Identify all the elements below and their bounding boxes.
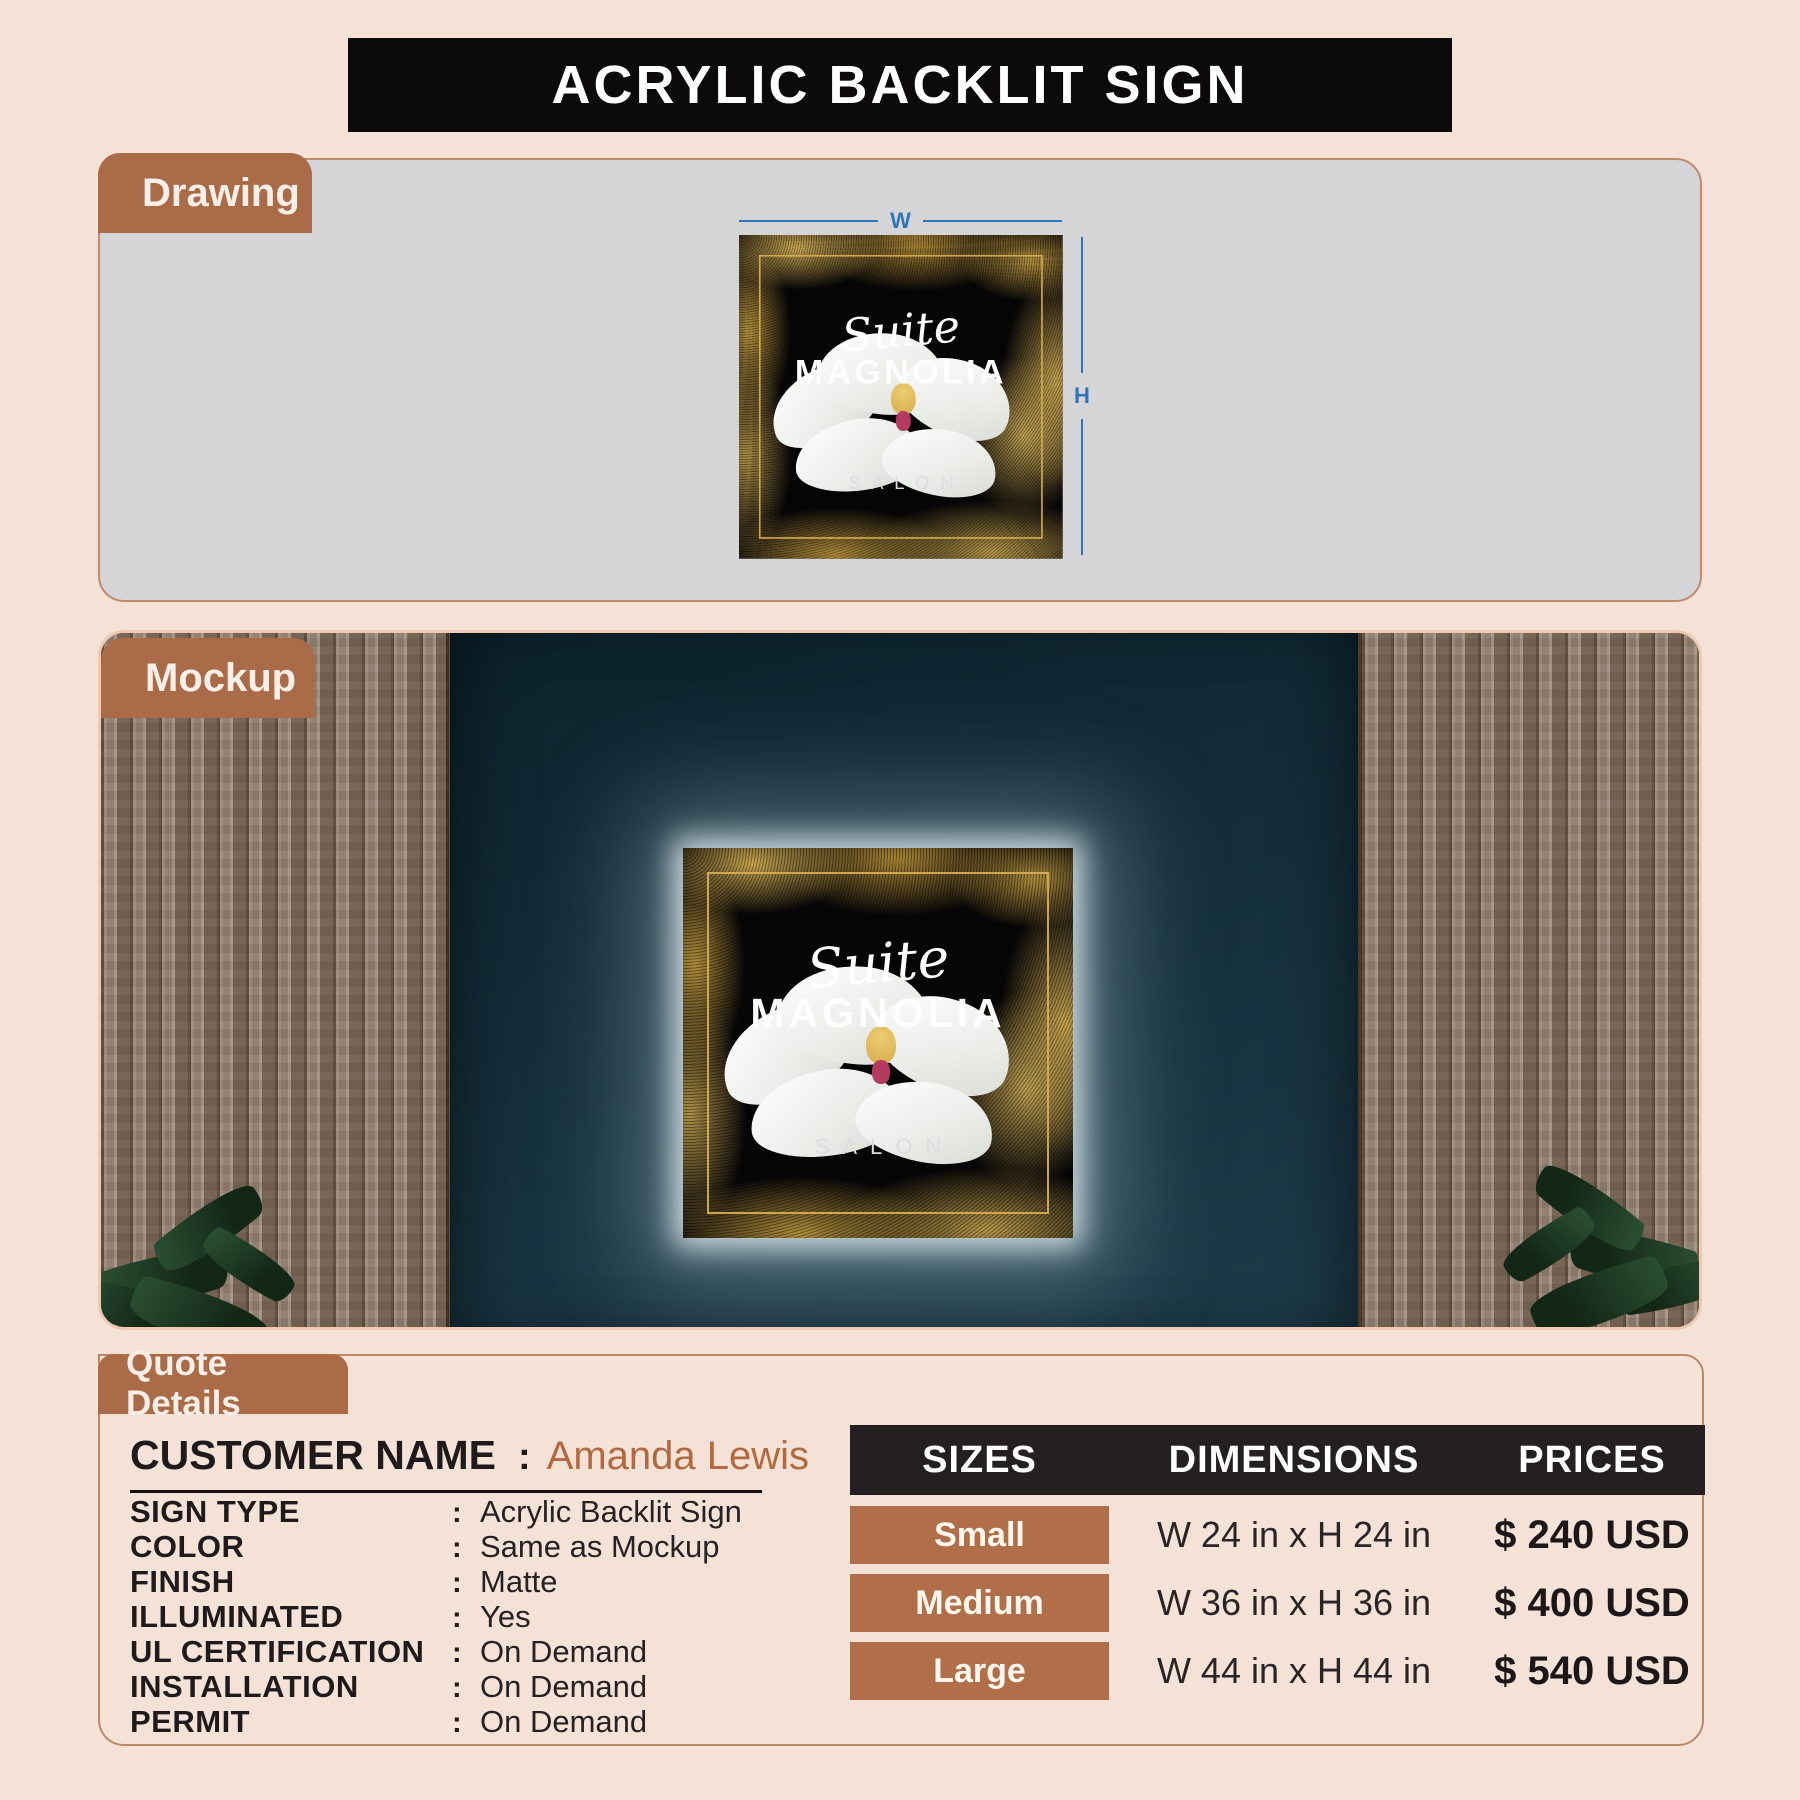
spec-label: INSTALLATION (130, 1669, 452, 1705)
price-cell: $ 540 USD (1479, 1649, 1705, 1694)
customer-name-row: CUSTOMER NAME : Amanda Lewis (130, 1432, 809, 1479)
sign-brand-name: MAGNOLIA (683, 990, 1073, 1037)
mockup-section-label: Mockup (145, 656, 296, 701)
quote-details-tab: Quote Details (98, 1354, 348, 1414)
column-header-prices: PRICES (1479, 1439, 1705, 1482)
table-row: Small W 24 in x H 24 in $ 240 USD (850, 1506, 1705, 1564)
page-title: ACRYLIC BACKLIT SIGN (552, 54, 1249, 116)
pricing-table: SIZES DIMENSIONS PRICES Small W 24 in x … (850, 1425, 1705, 1710)
separator-colon: : (452, 1532, 480, 1565)
dimension-line-segment (739, 220, 878, 222)
spec-row: ILLUMINATED : Yes (130, 1599, 742, 1630)
separator-colon: : (452, 1567, 480, 1600)
backlit-sign-mockup: Suite MAGNOLIA SALON (683, 848, 1073, 1238)
page-title-bar: ACRYLIC BACKLIT SIGN (348, 38, 1452, 132)
dimensions-cell: W 44 in x H 44 in (1109, 1650, 1479, 1692)
separator-colon: : (518, 1436, 531, 1479)
spec-label: COLOR (130, 1529, 452, 1565)
dimension-line-segment (1081, 237, 1083, 373)
height-dimension-label: H (1074, 383, 1090, 409)
price-cell: $ 240 USD (1479, 1513, 1705, 1558)
spec-label: UL CERTIFICATION (130, 1634, 452, 1670)
sign-artwork: Suite MAGNOLIA SALON (683, 848, 1073, 1238)
sign-brand-tagline: SALON (683, 1134, 1073, 1160)
table-row: Medium W 36 in x H 36 in $ 400 USD (850, 1574, 1705, 1632)
price-cell: $ 400 USD (1479, 1581, 1705, 1626)
spec-value: Acrylic Backlit Sign (480, 1494, 742, 1530)
drawing-panel: W H Suite MAGNOL (98, 158, 1702, 602)
spec-list: SIGN TYPE : Acrylic Backlit Sign COLOR :… (130, 1494, 742, 1735)
spec-row: INSTALLATION : On Demand (130, 1669, 742, 1700)
drawing-section-tab: Drawing (98, 153, 312, 233)
table-row: Large W 44 in x H 44 in $ 540 USD (850, 1642, 1705, 1700)
size-badge: Small (850, 1506, 1109, 1564)
plant-right (1449, 1165, 1702, 1330)
column-header-sizes: SIZES (850, 1439, 1109, 1482)
sign-drawing: Suite MAGNOLIA SALON (739, 235, 1062, 560)
spec-row: PERMIT : On Demand (130, 1704, 742, 1735)
quote-sheet-page: ACRYLIC BACKLIT SIGN Drawing W H (0, 0, 1800, 1800)
dimension-line-segment (923, 220, 1062, 222)
spec-value: Same as Mockup (480, 1529, 720, 1565)
spec-value: On Demand (480, 1669, 647, 1705)
mockup-section-tab: Mockup (101, 638, 315, 718)
width-dimension-label: W (890, 208, 911, 234)
spec-label: SIGN TYPE (130, 1494, 452, 1530)
spec-value: Matte (480, 1564, 558, 1600)
separator-colon: : (452, 1707, 480, 1740)
drawing-section-label: Drawing (142, 171, 300, 216)
flower-pistil (872, 1060, 890, 1084)
sign-brand-name: MAGNOLIA (739, 353, 1063, 392)
customer-name-value: Amanda Lewis (547, 1434, 809, 1479)
spec-label: PERMIT (130, 1704, 452, 1740)
separator-colon: : (452, 1672, 480, 1705)
customer-name-label: CUSTOMER NAME (130, 1432, 496, 1479)
plant-left (98, 1185, 309, 1330)
separator-colon: : (452, 1602, 480, 1635)
size-badge: Large (850, 1642, 1109, 1700)
separator-colon: : (452, 1637, 480, 1670)
customer-name-underline (130, 1490, 762, 1493)
spec-value: Yes (480, 1599, 531, 1635)
spec-row: SIGN TYPE : Acrylic Backlit Sign (130, 1494, 742, 1525)
dimensions-cell: W 36 in x H 36 in (1109, 1582, 1479, 1624)
height-dimension-line: H (1069, 237, 1095, 555)
width-dimension-line: W (739, 208, 1062, 234)
sign-artwork: Suite MAGNOLIA SALON (739, 235, 1063, 559)
dimension-line-segment (1081, 419, 1083, 555)
pricing-table-header: SIZES DIMENSIONS PRICES (850, 1425, 1705, 1495)
sign-brand-tagline: SALON (739, 472, 1063, 494)
dimensions-cell: W 24 in x H 24 in (1109, 1514, 1479, 1556)
separator-colon: : (452, 1497, 480, 1530)
spec-value: On Demand (480, 1634, 647, 1670)
mockup-panel: Mockup Suite MAGNOLIA SALON (98, 630, 1702, 1330)
spec-label: ILLUMINATED (130, 1599, 452, 1635)
spec-row: UL CERTIFICATION : On Demand (130, 1634, 742, 1665)
spec-row: COLOR : Same as Mockup (130, 1529, 742, 1560)
quote-details-label: Quote Details (126, 1344, 348, 1424)
spec-label: FINISH (130, 1564, 452, 1600)
spec-row: FINISH : Matte (130, 1564, 742, 1595)
size-badge: Medium (850, 1574, 1109, 1632)
column-header-dimensions: DIMENSIONS (1109, 1439, 1479, 1482)
spec-value: On Demand (480, 1704, 647, 1740)
flower-pistil (896, 411, 911, 431)
